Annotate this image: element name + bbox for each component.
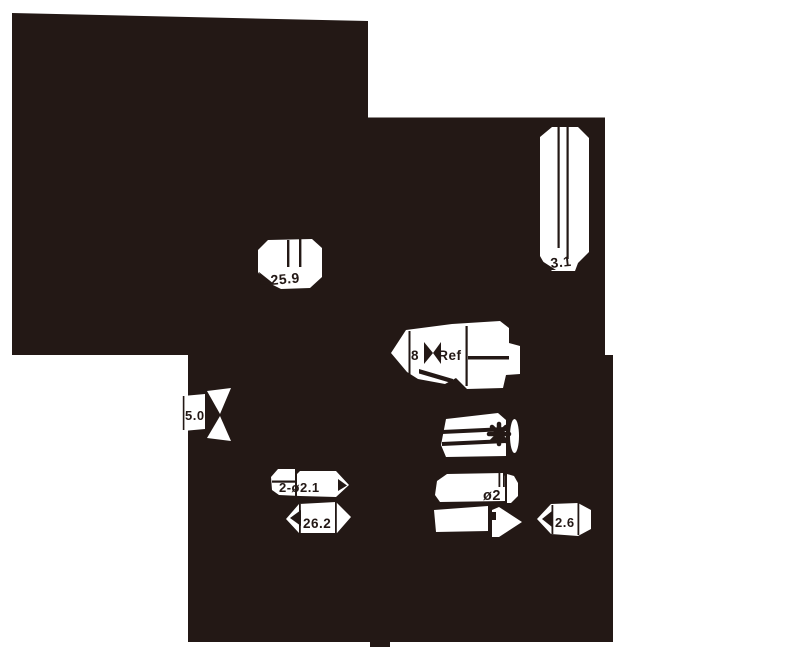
leader-arrow-details — [492, 512, 496, 520]
extension-line — [578, 503, 580, 535]
technical-drawing: 25.9 3.1 8 Ref 5.0 2-ø2.1 — [0, 0, 800, 651]
pocket-shape — [434, 506, 488, 532]
extension-line — [499, 473, 501, 487]
extension-line — [299, 239, 301, 267]
extension-line — [503, 473, 505, 487]
extension-line — [335, 502, 337, 533]
extension-line — [466, 326, 468, 386]
dimension-label-3-1: 3.1 — [550, 253, 573, 271]
extension-line — [567, 127, 569, 259]
drawing-silhouette — [12, 13, 613, 647]
asterisk-marker-icon — [489, 424, 509, 444]
dimension-label-2x-dia2-1: 2-ø2.1 — [279, 480, 320, 495]
edge-line — [492, 512, 496, 520]
extension-line — [552, 505, 554, 534]
extension-line — [558, 127, 560, 248]
dimension-label-26-2: 26.2 — [303, 516, 331, 531]
dimension-label-5-0: 5.0 — [185, 408, 205, 423]
dimension-label-8-ref: 8 Ref — [411, 348, 462, 363]
extension-line — [287, 240, 289, 267]
edge-line — [468, 356, 509, 360]
pocket-shape — [510, 419, 519, 453]
dimension-pocket-3-1 — [540, 127, 589, 271]
dimension-label-dia2: ø2 — [483, 488, 501, 504]
technical-drawing-canvas: 25.9 3.1 8 Ref 5.0 2-ø2.1 — [0, 0, 800, 651]
dimension-label-2-6: 2.6 — [555, 515, 575, 530]
pocket-shape — [540, 127, 589, 271]
dimension-label-25-9: 25.9 — [270, 270, 301, 288]
extension-line — [299, 504, 301, 533]
